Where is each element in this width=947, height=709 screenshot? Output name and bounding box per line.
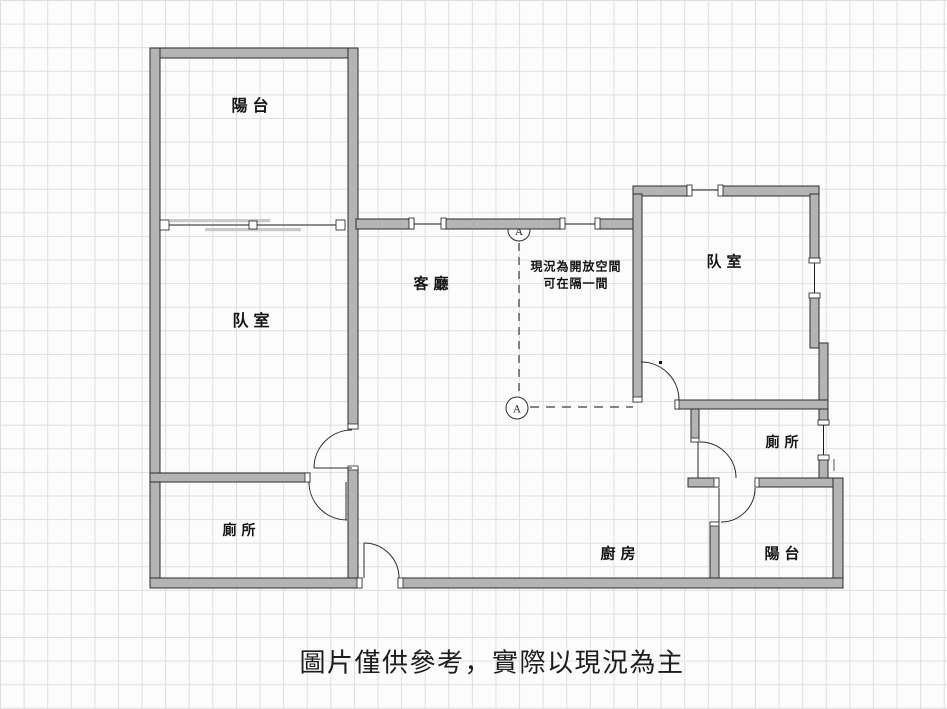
room-label-bedroom-right: 队室	[701, 251, 746, 272]
window-living-right	[560, 218, 600, 229]
wall	[356, 219, 414, 229]
wall	[348, 48, 358, 429]
door-bedroom-right	[641, 362, 679, 400]
wall	[675, 400, 828, 409]
door-toilet-right	[698, 442, 736, 478]
room-label-bedroom-left: 队室	[227, 307, 274, 331]
room-label-toilet-right: 廁所	[761, 432, 804, 452]
open-space-annotation-line1: 現況為開放空間	[530, 259, 621, 276]
door-toilet-left	[309, 482, 347, 520]
wall	[819, 343, 828, 425]
doors	[309, 362, 755, 578]
plan-marks	[659, 361, 834, 471]
wall	[348, 468, 358, 588]
window-balcony-left	[160, 219, 345, 231]
window-living-left	[409, 218, 446, 229]
door-balcony-bottom-right	[719, 488, 755, 522]
wall	[150, 48, 160, 588]
door-bedroom-left	[314, 430, 352, 468]
wall	[150, 578, 362, 588]
door-entry	[364, 543, 399, 578]
section-marker-bottom-letter: A	[512, 405, 521, 416]
wall	[755, 478, 843, 487]
wall	[398, 578, 843, 588]
room-label-kitchen: 廚房	[595, 543, 640, 564]
wall	[810, 295, 819, 348]
section-marker-bottom: A	[506, 397, 528, 419]
wall	[810, 194, 819, 262]
room-label-living-room: 客廳	[408, 273, 453, 294]
wall	[722, 186, 819, 196]
room-label-toilet-left: 廁所	[218, 520, 261, 540]
window-bedroom-right-side	[809, 258, 820, 298]
wall	[833, 478, 843, 588]
floorplan-drawing: A	[0, 0, 947, 709]
disclaimer-caption: 圖片僅供參考，實際以現況為主	[299, 643, 684, 680]
room-label-balcony-bottom-right: 陽台	[759, 543, 804, 564]
window-bedroom-right-top	[687, 185, 723, 196]
wall	[444, 219, 562, 229]
window-toilet-right-side	[818, 420, 829, 460]
wall	[150, 48, 357, 58]
floorplan-canvas: A	[0, 0, 947, 709]
wall	[633, 194, 642, 402]
open-space-annotation: 現況為開放空間 可在隔一間	[530, 259, 621, 292]
room-label-balcony-top-left: 陽台	[226, 92, 273, 116]
hinge-dot	[659, 361, 662, 364]
wall	[150, 473, 310, 482]
open-space-annotation-line2: 可在隔一間	[530, 275, 621, 292]
wall	[691, 409, 699, 442]
